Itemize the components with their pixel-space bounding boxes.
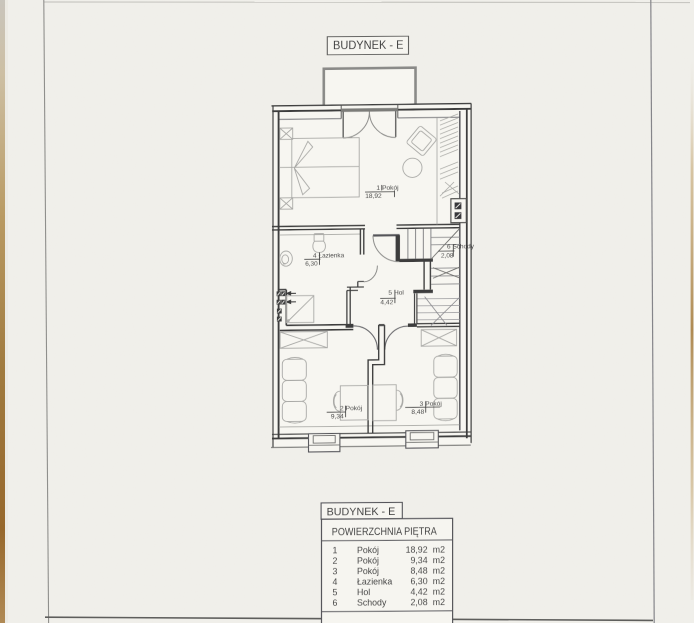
svg-text:6,30: 6,30 <box>305 260 318 267</box>
svg-text:5: 5 <box>333 587 338 597</box>
svg-text:3: 3 <box>333 566 338 576</box>
svg-text:9,34: 9,34 <box>331 413 344 420</box>
svg-text:m2: m2 <box>433 566 445 576</box>
svg-text:2,08: 2,08 <box>441 252 454 259</box>
svg-text:6,30: 6,30 <box>410 576 427 586</box>
svg-text:8,48: 8,48 <box>410 566 427 576</box>
svg-text:6: 6 <box>333 598 338 608</box>
svg-text:BUDYNEK - E: BUDYNEK - E <box>333 38 404 52</box>
svg-text:8,48: 8,48 <box>411 409 424 416</box>
svg-text:m2: m2 <box>433 545 445 555</box>
svg-text:m2: m2 <box>433 576 445 586</box>
svg-text:9,34: 9,34 <box>410 555 427 565</box>
svg-text:2Pokój: 2Pokój <box>340 405 363 412</box>
svg-text:Pokój: Pokój <box>357 545 379 555</box>
svg-text:18,92: 18,92 <box>406 545 428 555</box>
svg-text:Pokój: Pokój <box>357 556 379 566</box>
svg-text:4: 4 <box>333 577 338 587</box>
svg-text:4,42: 4,42 <box>410 587 427 597</box>
svg-text:m2: m2 <box>433 555 445 565</box>
svg-text:2: 2 <box>333 556 338 566</box>
svg-text:1Pokój: 1Pokój <box>376 185 399 192</box>
svg-text:m2: m2 <box>433 597 445 607</box>
svg-text:1: 1 <box>333 546 338 556</box>
svg-text:18,92: 18,92 <box>365 193 382 200</box>
svg-text:4,42: 4,42 <box>380 299 393 306</box>
svg-text:5Hol: 5Hol <box>388 290 404 297</box>
svg-text:POWIERZCHNIA PIĘTRA: POWIERZCHNIA PIĘTRA <box>332 526 438 539</box>
svg-text:BUDYNEK - E: BUDYNEK - E <box>327 506 396 518</box>
svg-text:Pokój: Pokój <box>357 566 379 576</box>
svg-text:Łazienka: Łazienka <box>357 577 392 587</box>
svg-text:Hol: Hol <box>357 587 370 597</box>
svg-text:2,08: 2,08 <box>410 597 427 607</box>
svg-text:Schody: Schody <box>357 597 387 607</box>
svg-text:m2: m2 <box>433 587 445 597</box>
